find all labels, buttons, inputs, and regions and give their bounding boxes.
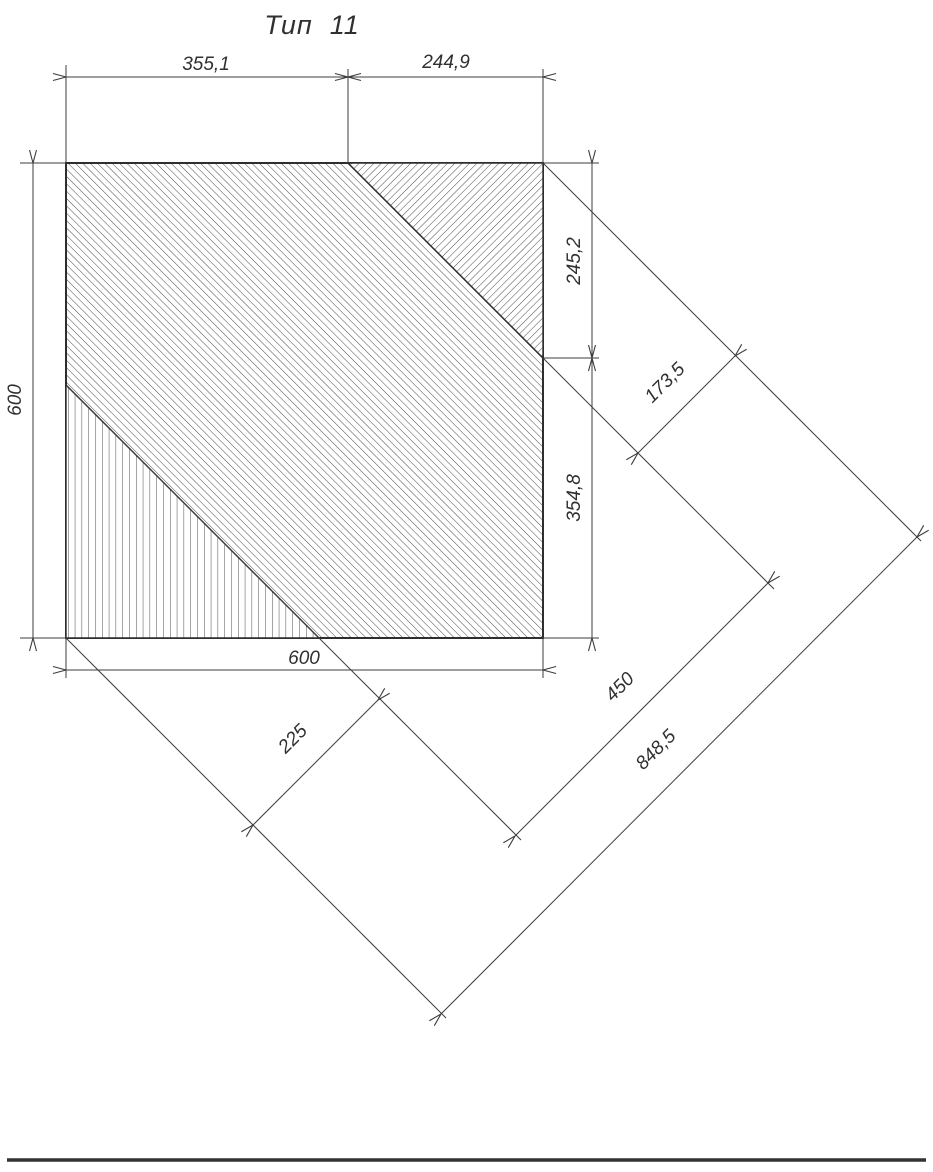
dim-label-right-upper: 245,2: [564, 237, 585, 286]
dim-label-diag-lower: 225: [274, 720, 312, 758]
dim-label-bottom-width: 600: [288, 648, 320, 669]
page-title: Тип 11: [264, 10, 360, 40]
dim-label-diag-mid: 450: [601, 668, 639, 706]
dim-label-top-left: 355,1: [182, 54, 230, 75]
dim-label-diag-total: 848,5: [632, 726, 681, 775]
dim-label-left-height: 600: [5, 384, 26, 416]
ext-diagonal-from-sw-corner: [66, 638, 446, 1018]
drawing-page: Тип 11 355,1 244,9 600 245,2 354,8 600 1…: [0, 0, 933, 1172]
ext-diagonal-from-ne-corner: [543, 163, 921, 541]
dim-label-right-lower: 354,8: [564, 474, 585, 522]
technical-drawing: Тип 11 355,1 244,9 600 245,2 354,8 600 1…: [0, 0, 933, 1172]
dim-line-diag-lower: [253, 700, 378, 825]
dim-line-diag-mid: [515, 583, 768, 836]
panel: [66, 163, 543, 638]
dim-label-diag-small: 173,5: [641, 359, 690, 408]
dim-label-top-right: 244,9: [421, 52, 470, 73]
